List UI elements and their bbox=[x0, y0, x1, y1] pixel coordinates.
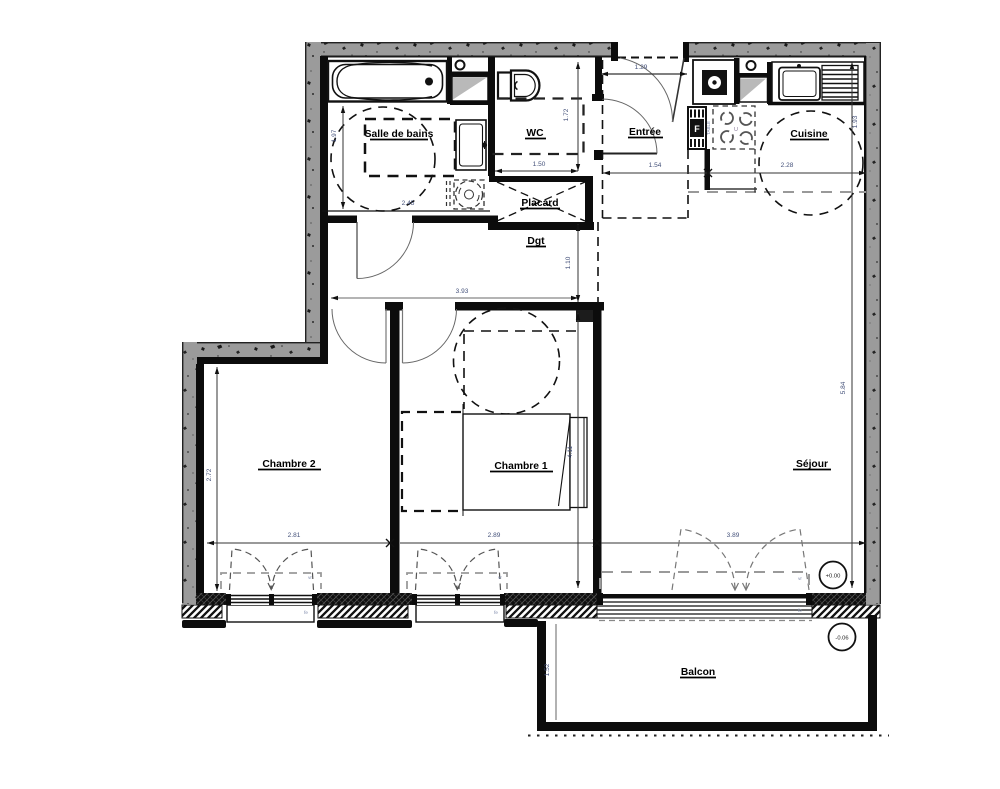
svg-text:Chambre 2: Chambre 2 bbox=[262, 459, 315, 470]
svg-text:TABLE: TABLE bbox=[706, 121, 711, 135]
svg-text:Entrée: Entrée bbox=[629, 127, 661, 138]
svg-text:3.89: 3.89 bbox=[727, 532, 740, 539]
svg-text:1.93: 1.93 bbox=[852, 115, 859, 128]
svg-text:U: U bbox=[734, 127, 738, 133]
svg-text:2.72: 2.72 bbox=[206, 468, 213, 481]
svg-text:Cuisine: Cuisine bbox=[790, 129, 827, 140]
svg-text:Chambre 1: Chambre 1 bbox=[494, 461, 547, 472]
svg-text:Séjour: Séjour bbox=[796, 459, 828, 470]
svg-text:2.89: 2.89 bbox=[488, 532, 501, 539]
svg-text:F: F bbox=[694, 124, 700, 134]
svg-text:Dgt: Dgt bbox=[527, 236, 545, 247]
svg-text:vr: vr bbox=[498, 575, 502, 580]
svg-text:1.52: 1.52 bbox=[544, 663, 551, 676]
svg-text:vr: vr bbox=[798, 576, 802, 581]
svg-text:2.45: 2.45 bbox=[402, 200, 415, 207]
svg-text:1.29: 1.29 bbox=[635, 64, 648, 71]
svg-text:Balcon: Balcon bbox=[681, 667, 715, 678]
svg-text:fe: fe bbox=[304, 610, 308, 615]
svg-text:4.11: 4.11 bbox=[567, 446, 574, 459]
svg-text:3.93: 3.93 bbox=[456, 288, 469, 295]
svg-text:-0.06: -0.06 bbox=[835, 636, 848, 642]
svg-text:1.10: 1.10 bbox=[565, 256, 572, 269]
svg-text:1.50: 1.50 bbox=[533, 161, 546, 168]
svg-text:1.97: 1.97 bbox=[331, 129, 338, 142]
svg-text:WC: WC bbox=[526, 128, 544, 139]
svg-text:5.84: 5.84 bbox=[840, 381, 847, 394]
svg-text:vr: vr bbox=[308, 575, 312, 580]
svg-text:fe: fe bbox=[494, 610, 498, 615]
svg-text:Salle de bains: Salle de bains bbox=[365, 129, 434, 140]
svg-text:Placard: Placard bbox=[521, 198, 558, 209]
svg-text:fe: fe bbox=[798, 608, 802, 613]
svg-text:2.28: 2.28 bbox=[781, 162, 794, 169]
svg-text:2.81: 2.81 bbox=[288, 532, 301, 539]
svg-text:1.72: 1.72 bbox=[563, 108, 570, 121]
svg-text:1.54: 1.54 bbox=[649, 162, 662, 169]
svg-text:+0.00: +0.00 bbox=[826, 574, 841, 580]
